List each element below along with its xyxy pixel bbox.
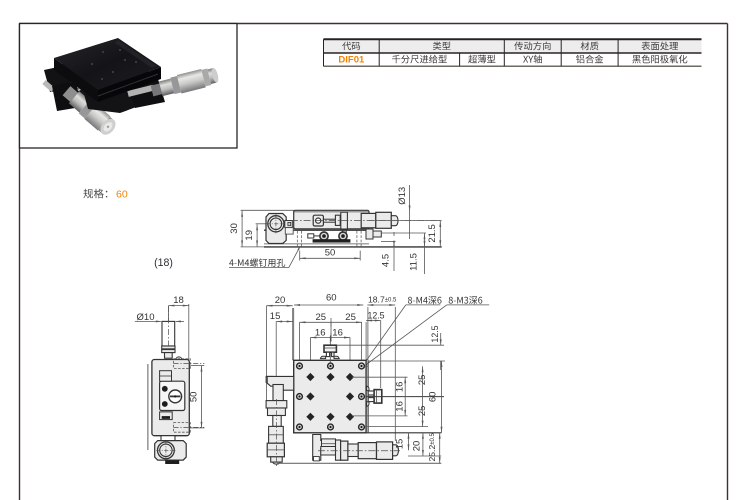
svg-text:11.5: 11.5 <box>409 253 420 271</box>
svg-text:15: 15 <box>395 439 406 450</box>
svg-text:50: 50 <box>188 392 199 403</box>
svg-text:DIF01: DIF01 <box>338 55 365 66</box>
svg-text:12.5: 12.5 <box>367 311 384 321</box>
svg-text:21.5: 21.5 <box>427 224 438 243</box>
svg-text:50: 50 <box>325 248 336 259</box>
svg-text:60: 60 <box>428 392 439 403</box>
svg-text:60: 60 <box>326 293 337 304</box>
svg-text:18: 18 <box>173 295 184 306</box>
svg-text:4.5: 4.5 <box>381 254 392 267</box>
svg-text:25: 25 <box>417 406 428 417</box>
svg-text:(18): (18) <box>154 257 173 269</box>
svg-text:25: 25 <box>417 375 428 386</box>
svg-text:15: 15 <box>270 311 281 322</box>
svg-text:20: 20 <box>275 295 286 306</box>
svg-text:25: 25 <box>316 312 327 323</box>
svg-text:20: 20 <box>411 441 422 452</box>
svg-text:Ø13: Ø13 <box>397 187 408 205</box>
svg-text:25.2±0.5: 25.2±0.5 <box>427 432 437 461</box>
svg-text:18.7±0.5: 18.7±0.5 <box>368 295 397 305</box>
svg-text:16: 16 <box>395 401 406 412</box>
svg-text:16: 16 <box>395 382 406 393</box>
svg-text:12.5: 12.5 <box>430 325 440 342</box>
svg-text:25: 25 <box>345 312 356 323</box>
svg-text:16: 16 <box>315 327 326 338</box>
svg-text:19: 19 <box>244 230 255 241</box>
svg-text:16: 16 <box>332 327 343 338</box>
svg-text:30: 30 <box>229 223 240 234</box>
svg-text:60: 60 <box>116 189 128 201</box>
